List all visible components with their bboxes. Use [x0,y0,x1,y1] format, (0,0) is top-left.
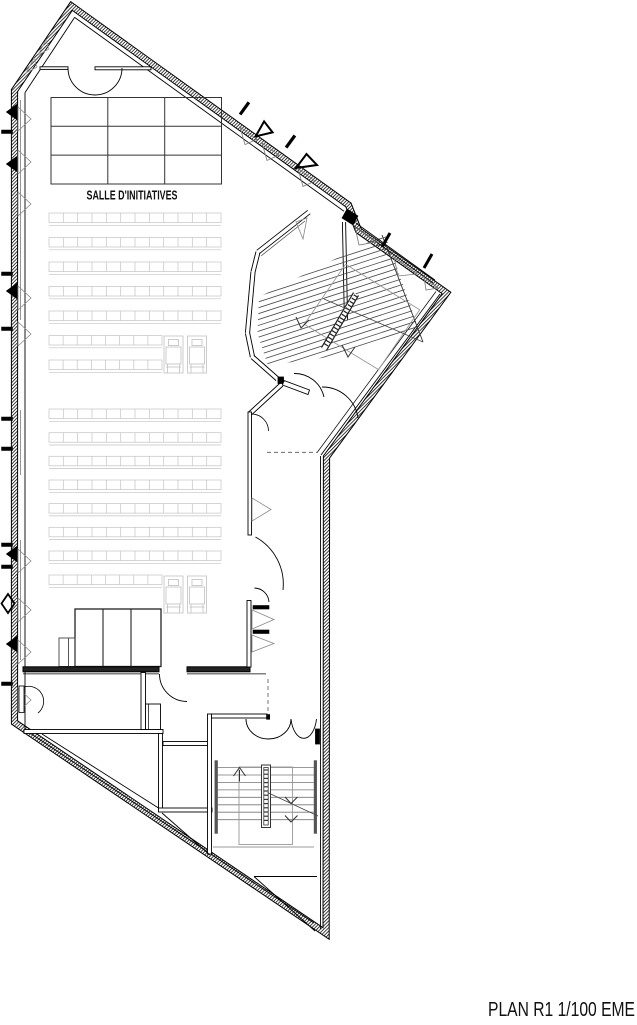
svg-text:PLAN R1 1/100 EME: PLAN R1 1/100 EME [488,999,635,1020]
svg-text:SALLE D'INITIATIVES: SALLE D'INITIATIVES [87,189,178,203]
